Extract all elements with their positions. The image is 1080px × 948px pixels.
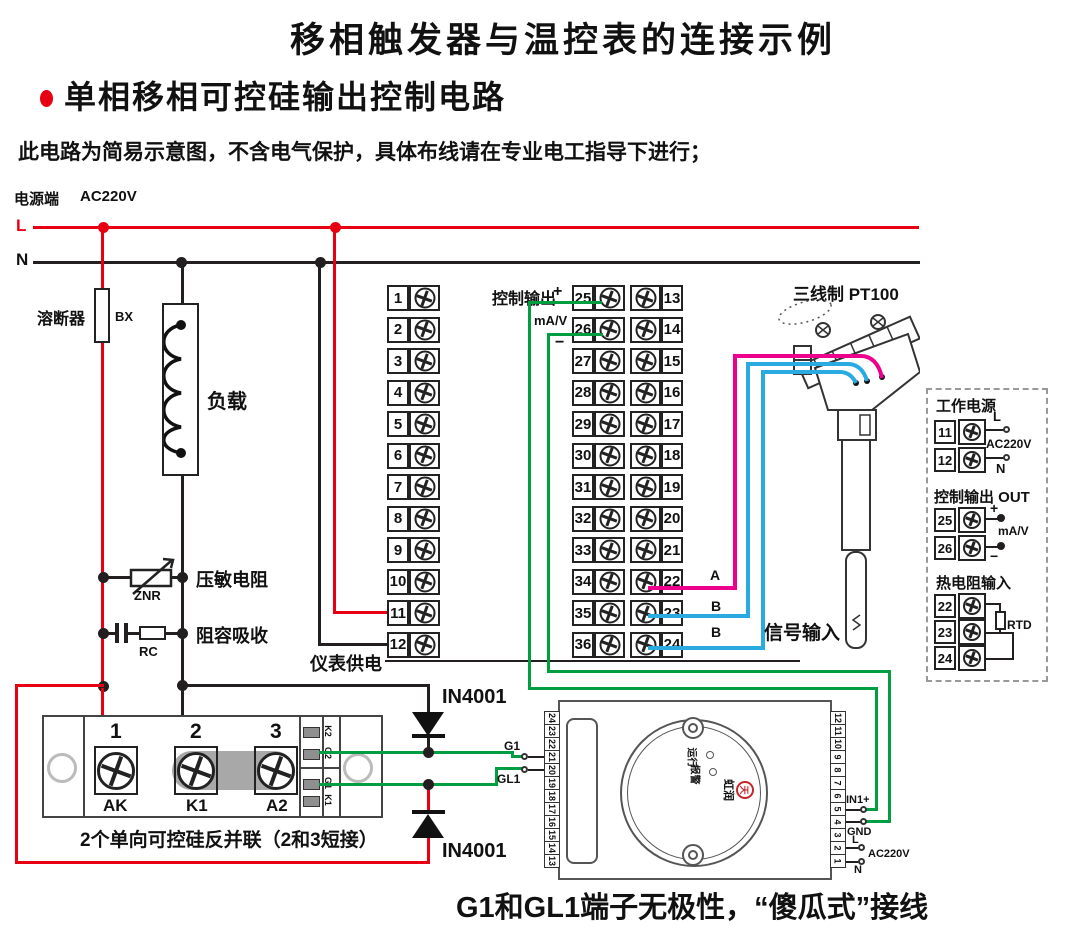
scr-caption: 2个单向可控硅反并联（2和3短接） [80, 825, 378, 852]
screw-icon [414, 634, 435, 655]
gate-k1: K1 [323, 794, 333, 806]
gnd-label: GND [847, 826, 871, 838]
terminal-row: 27 [572, 348, 625, 374]
scr-pad-k1: K1 [186, 796, 208, 816]
pin-cell: 10 [830, 737, 846, 751]
pin-cell: 17 [544, 802, 560, 816]
line-n-label: N [16, 250, 28, 270]
screw-icon [599, 414, 620, 435]
terminal-row: 2 [387, 317, 440, 343]
signal-input-label: 信号输入 [764, 618, 840, 645]
brand-seal-icon: 天 [736, 781, 754, 799]
terminal-row: 9 [387, 537, 440, 563]
pin-cell: 23 [544, 724, 560, 738]
terminal-row: 30 [572, 443, 625, 469]
g1-label: G1 [504, 739, 520, 753]
pin-cell: 20 [544, 763, 560, 777]
screw-icon [635, 540, 656, 561]
pin-cell: 15 [544, 828, 560, 842]
pin-cell: 16 [544, 815, 560, 829]
terminal-row: 17 [630, 411, 683, 437]
pin-cell: 7 [830, 776, 846, 790]
varistor-code: ZNR [134, 588, 161, 603]
terminal-row: 24 [630, 632, 683, 658]
screw-icon [599, 508, 620, 529]
rc-code: RC [139, 644, 158, 659]
terminal-row: 34 [572, 569, 625, 595]
pin-cell: 21 [544, 750, 560, 764]
terminal-row: 26 [572, 317, 625, 343]
terminal-row: 1 [387, 285, 440, 311]
trigger-l-label: L [852, 834, 859, 846]
screw-icon [414, 603, 435, 624]
fuse-symbol [94, 288, 110, 343]
terminal-row: 31 [572, 474, 625, 500]
terminal-row: 19 [630, 474, 683, 500]
screw-icon [414, 540, 435, 561]
alarm-label: 报警 [689, 765, 704, 785]
ctrl-output-plus: + [553, 283, 562, 301]
screw-icon [414, 414, 435, 435]
terminal-row: 22 [630, 569, 683, 595]
screw-icon [414, 508, 435, 529]
ctrl-output-label: 控制输出 [492, 285, 556, 309]
gate-k2: K2 [323, 725, 333, 737]
alarm-led [709, 768, 717, 776]
terminal-row: 23 [630, 600, 683, 626]
controller-mid-strip: 252627282930313233343536 [572, 285, 625, 663]
diode-top-label: IN4001 [442, 686, 507, 709]
screw-icon [599, 571, 620, 592]
trigger-left-strip: 242322212019181716151413 [544, 712, 560, 868]
work-power-label: 工作电源 [936, 395, 996, 416]
diode-bottom-icon [412, 814, 444, 838]
terminal-row: 10 [387, 569, 440, 595]
screw-icon [635, 288, 656, 309]
pin-cell: 4 [830, 815, 846, 829]
rtd-in-title: 热电阻输入 [936, 572, 1011, 593]
mount-hole-left [47, 753, 77, 783]
line-l-label: L [16, 216, 26, 236]
terminal-row: 16 [630, 380, 683, 406]
terminal-row: 15 [630, 348, 683, 374]
screw-icon [414, 477, 435, 498]
screw-icon [414, 319, 435, 340]
gl1-terminal [521, 766, 528, 773]
power-voltage: AC220V [80, 188, 137, 205]
gl1-label: GL1 [497, 772, 520, 786]
pin-cell: 2 [830, 841, 846, 855]
safety-note: 此电路为简易示意图，不含电气保护，具体布线请在专业电工指导下进行； [18, 136, 711, 166]
terminal-row: 4 [387, 380, 440, 406]
terminal-row: 14 [630, 317, 683, 343]
terminal-row: 25 [572, 285, 625, 311]
in1-label: IN1+ [846, 794, 870, 806]
screw-icon [599, 288, 620, 309]
pin-cell: 12 [830, 711, 846, 725]
terminal-row: 20 [630, 506, 683, 532]
screw-icon [635, 382, 656, 403]
screw-icon [599, 540, 620, 561]
screw-icon [635, 508, 656, 529]
pin-cell: 19 [544, 776, 560, 790]
scr-num-3: 3 [270, 720, 282, 744]
pin-cell: 22 [544, 737, 560, 751]
screw-icon [635, 351, 656, 372]
scr-screw-1 [97, 752, 135, 790]
ctrl-out-title: 控制输出 OUT [934, 486, 1030, 507]
screw-icon [599, 634, 620, 655]
trigger-ac-label: AC220V [868, 848, 910, 860]
meter-supply-label: 仪表供电 [310, 650, 382, 676]
panel-plus: + [990, 500, 998, 516]
panel-mav: mA/V [998, 524, 1029, 538]
trigger-n-label: N [854, 864, 862, 876]
terminal-row: 29 [572, 411, 625, 437]
screw-icon [414, 571, 435, 592]
screw-icon [599, 445, 620, 466]
screw-icon [599, 319, 620, 340]
controller-left-strip: 123456789101112 [387, 285, 440, 663]
rc-label: 阻容吸收 [196, 622, 268, 648]
screw-icon [635, 477, 656, 498]
terminal-row: 12 [387, 632, 440, 658]
rc-resistor-symbol [139, 626, 166, 640]
terminal-row: 18 [630, 443, 683, 469]
wire-n [33, 261, 920, 264]
terminal-row: 6 [387, 443, 440, 469]
pt100-sensor [720, 290, 920, 670]
subtitle: 单相移相可控硅输出控制电路 [64, 72, 506, 118]
screw-icon [599, 477, 620, 498]
scr-pad-a2: A2 [266, 796, 288, 816]
pin-cell: 6 [830, 789, 846, 803]
trigger-connector [566, 718, 598, 864]
wire-a-label: A [710, 567, 720, 583]
screw-icon [414, 445, 435, 466]
ctrl-output-mav: mA/V [534, 313, 567, 328]
screw-icon [635, 414, 656, 435]
terminal-row: 5 [387, 411, 440, 437]
l-terminal [858, 844, 865, 851]
scr-screw-3 [257, 752, 295, 790]
pin-cell: 8 [830, 763, 846, 777]
panel-rtd: RTD [1007, 618, 1032, 632]
screw-icon [599, 603, 620, 624]
page-title: 移相触发器与温控表的连接示例 [290, 12, 836, 63]
pin-cell: 5 [830, 802, 846, 816]
mount-hole-right [343, 753, 373, 783]
run-led [706, 751, 714, 759]
scr-pad-ak: AK [103, 796, 128, 816]
wiring-diagram: 移相触发器与温控表的连接示例 单相移相可控硅输出控制电路 此电路为简易示意图，不… [0, 0, 1080, 948]
wire-b2-label: B [711, 624, 721, 640]
terminal-row: 8 [387, 506, 440, 532]
wire-b1-label: B [711, 598, 721, 614]
scr-num-2: 2 [190, 720, 202, 744]
terminal-row: 13 [630, 285, 683, 311]
trigger-right-strip: 121110987654321 [830, 712, 846, 868]
rtd-resistor [995, 611, 1006, 630]
screw-icon [414, 351, 435, 372]
terminal-row: 35 [572, 600, 625, 626]
ctrl-output-minus: − [555, 334, 564, 352]
terminal-row: 36 [572, 632, 625, 658]
scr-screw-2 [177, 752, 215, 790]
diode-bottom-label: IN4001 [442, 840, 507, 863]
pin-cell: 18 [544, 789, 560, 803]
panel-minus: − [990, 548, 998, 564]
terminal-row: 33 [572, 537, 625, 563]
controller-right-strip: 131415161718192021222324 [630, 285, 683, 663]
pin-cell: 13 [544, 854, 560, 868]
scr-num-1: 1 [110, 720, 122, 744]
screw-icon [599, 382, 620, 403]
footer-note: G1和GL1端子无极性，“傻瓜式”接线 [456, 884, 928, 926]
pin-cell: 1 [830, 854, 846, 868]
pin-cell: 9 [830, 750, 846, 764]
screw-icon [635, 603, 656, 624]
terminal-row: 21 [630, 537, 683, 563]
screw-icon [414, 382, 435, 403]
panel-l: L [993, 409, 1001, 424]
terminal-row: 28 [572, 380, 625, 406]
screw-icon [635, 445, 656, 466]
g1-terminal [521, 753, 528, 760]
terminal-row: 11 [387, 600, 440, 626]
pin-cell: 3 [830, 828, 846, 842]
gnd-terminal [860, 818, 867, 825]
brand-logo: 虹润 [721, 779, 737, 801]
screw-icon [414, 288, 435, 309]
pin-cell: 14 [544, 841, 560, 855]
pin-cell: 11 [830, 724, 846, 738]
terminal-row: 32 [572, 506, 625, 532]
diode-top-icon [412, 712, 444, 736]
fuse-code: BX [115, 309, 133, 324]
wire-l [33, 226, 919, 229]
load-label: 负载 [207, 385, 247, 414]
power-source-label: 电源端 [14, 188, 59, 209]
panel-ac: AC220V [986, 437, 1031, 451]
bullet-icon [40, 90, 53, 107]
terminal-row: 3 [387, 348, 440, 374]
varistor-label: 压敏电阻 [196, 566, 268, 592]
terminal-row: 7 [387, 474, 440, 500]
pin-cell: 24 [544, 711, 560, 725]
load-symbol [162, 303, 199, 476]
screw-icon [635, 634, 656, 655]
panel-n: N [996, 461, 1005, 476]
fuse-label: 溶断器 [37, 305, 85, 329]
in1-terminal [860, 806, 867, 813]
screw-icon [599, 351, 620, 372]
screw-icon [635, 319, 656, 340]
